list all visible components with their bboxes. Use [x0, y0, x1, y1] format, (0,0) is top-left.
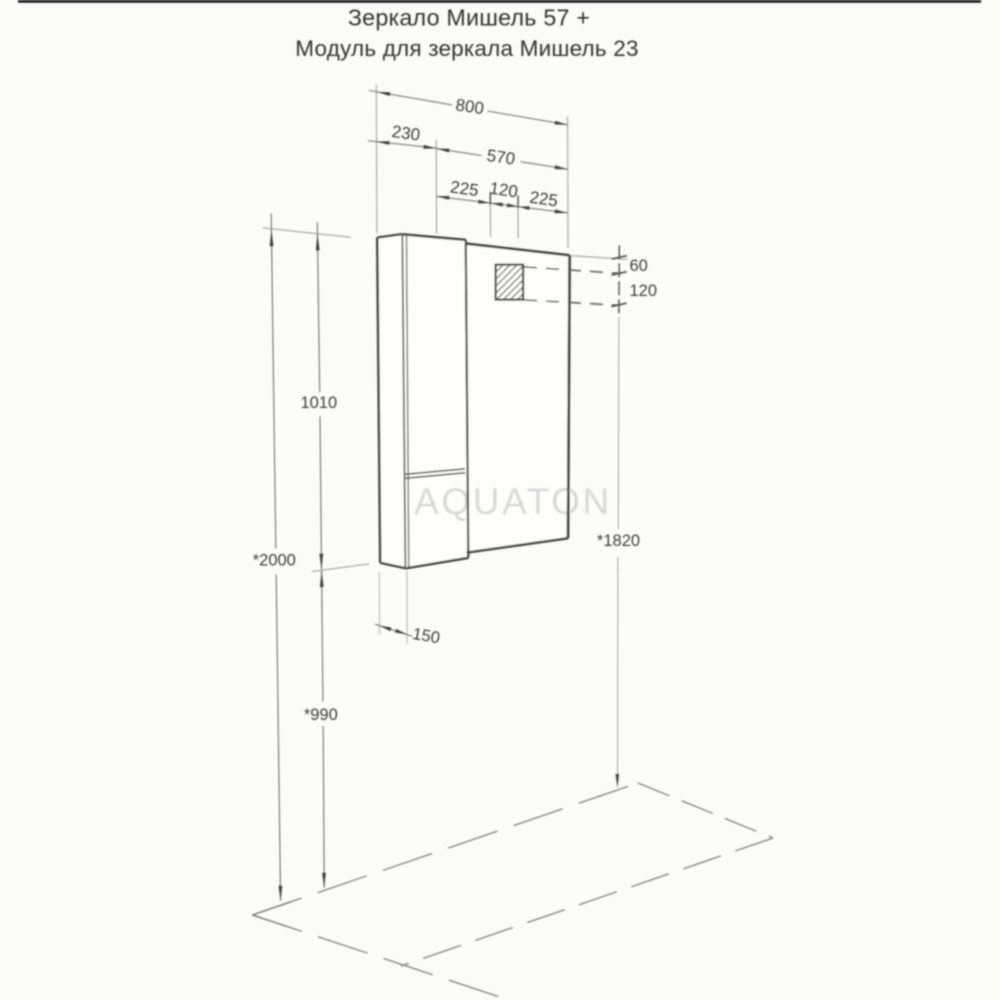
svg-text:1010: 1010: [300, 394, 337, 412]
svg-text:*2000: *2000: [253, 552, 296, 570]
svg-text:570: 570: [486, 146, 517, 169]
svg-text:60: 60: [630, 257, 648, 275]
svg-text:225: 225: [528, 188, 559, 211]
svg-text:120: 120: [488, 179, 519, 202]
svg-text:Модуль для зеркала Мишель 23: Модуль для зеркала Мишель 23: [295, 36, 638, 61]
svg-text:*990: *990: [304, 706, 338, 724]
svg-text:120: 120: [630, 282, 658, 300]
svg-text:Зеркало Мишель 57 +: Зеркало Мишель 57 +: [348, 5, 590, 31]
svg-text:AQUATON: AQUATON: [414, 481, 612, 522]
svg-text:*1820: *1820: [597, 532, 640, 550]
svg-text:225: 225: [449, 177, 480, 200]
svg-text:230: 230: [391, 122, 422, 145]
